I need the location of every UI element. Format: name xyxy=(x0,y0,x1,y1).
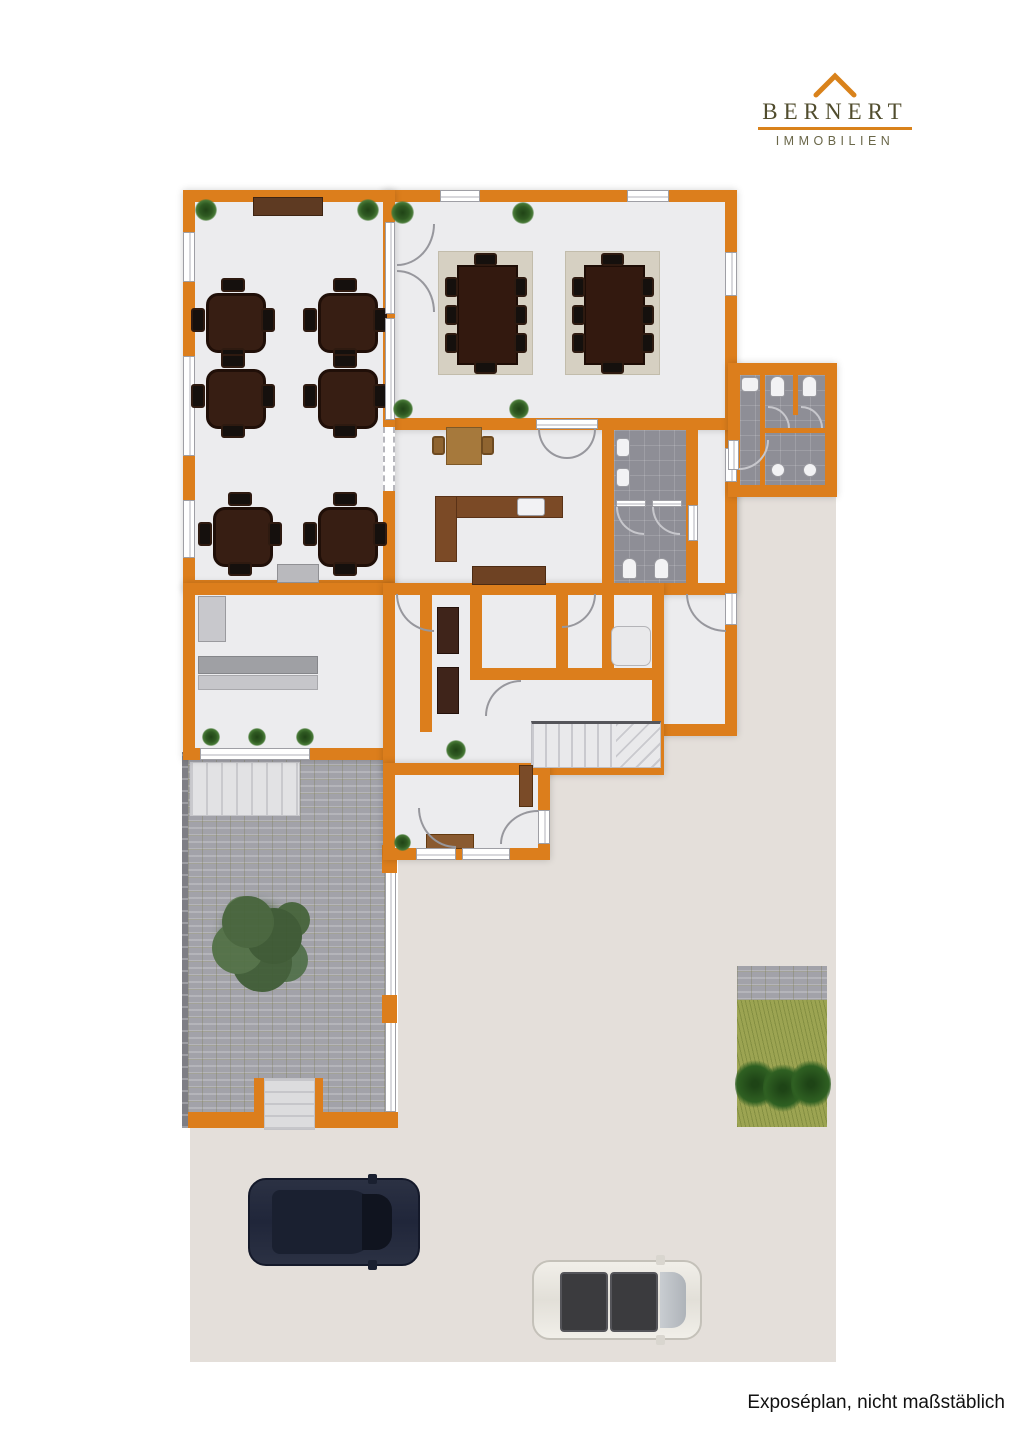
plan-caption: Exposéplan, nicht maßstäblich xyxy=(747,1392,1005,1414)
eight-seat-table-group xyxy=(438,251,533,375)
console-shelf xyxy=(519,765,533,807)
window xyxy=(440,190,480,202)
four-seat-table xyxy=(189,352,277,440)
logo-rule xyxy=(758,127,912,130)
table-top xyxy=(457,265,518,365)
courtyard-south-wall xyxy=(320,1112,398,1128)
door-gap xyxy=(416,848,456,860)
toilet xyxy=(654,558,669,579)
stall-door xyxy=(652,500,682,507)
table-top xyxy=(318,293,378,353)
car-sunroof xyxy=(610,1272,658,1332)
chair xyxy=(333,424,357,438)
table-top xyxy=(318,507,378,567)
stall-door xyxy=(616,500,646,507)
chair xyxy=(221,278,245,292)
plant xyxy=(512,202,534,224)
plant xyxy=(391,201,414,224)
car-windshield xyxy=(660,1272,686,1328)
stair-treads xyxy=(532,724,617,767)
wc-wall xyxy=(602,425,614,583)
logo-subtitle: IMMOBILIEN xyxy=(752,134,918,148)
dark-car xyxy=(248,1178,420,1266)
kitchen-sink xyxy=(517,498,545,516)
service-counter xyxy=(198,656,318,674)
bush xyxy=(791,1058,831,1110)
window xyxy=(183,500,195,558)
plant xyxy=(195,199,217,221)
appliance xyxy=(611,626,651,666)
logo: BERNERT IMMOBILIEN xyxy=(752,70,918,148)
chair xyxy=(221,354,245,368)
table-top xyxy=(206,369,266,429)
kitchen-sideboard xyxy=(472,566,546,585)
chair xyxy=(445,277,458,297)
garden-paving xyxy=(737,966,827,1000)
toilet xyxy=(770,376,785,397)
plant xyxy=(357,199,379,221)
door-gap xyxy=(536,419,598,429)
chair xyxy=(333,354,357,368)
window xyxy=(200,748,310,760)
chair xyxy=(572,305,585,325)
pantry-wall xyxy=(470,592,482,678)
vanity-basin xyxy=(741,377,759,392)
wash-basin xyxy=(616,438,630,457)
chair xyxy=(303,384,317,408)
tree xyxy=(222,896,274,948)
chair xyxy=(601,361,624,374)
door-gap xyxy=(688,505,698,541)
table-top xyxy=(206,293,266,353)
four-seat-table xyxy=(301,490,389,578)
chair xyxy=(303,522,317,546)
chair xyxy=(641,277,654,297)
wash-basin xyxy=(803,463,817,477)
table-top xyxy=(584,265,645,365)
four-seat-table xyxy=(301,352,389,440)
car-mirror xyxy=(656,1335,665,1345)
plant xyxy=(202,728,220,746)
logo-brand: BERNERT xyxy=(752,99,918,125)
chair xyxy=(641,333,654,353)
roof-outline-icon xyxy=(809,70,861,98)
wall-segment xyxy=(382,995,397,1023)
chair xyxy=(261,384,275,408)
car-mirror xyxy=(656,1255,665,1265)
table-top xyxy=(213,507,273,567)
chair xyxy=(261,308,275,332)
chair xyxy=(514,305,527,325)
window xyxy=(462,848,510,860)
exposeplan-canvas: BERNERT IMMOBILIEN Exposéplan, nicht maß… xyxy=(0,0,1018,1440)
staircase xyxy=(531,721,661,768)
door-gap xyxy=(385,222,395,314)
plant xyxy=(296,728,314,746)
door-gap xyxy=(725,593,737,625)
chair xyxy=(191,308,205,332)
toilet xyxy=(802,376,817,397)
chair xyxy=(601,253,624,266)
four-seat-table xyxy=(301,276,389,364)
wc-wall xyxy=(765,428,825,433)
refrigerator xyxy=(198,596,226,642)
chair xyxy=(514,333,527,353)
chair xyxy=(228,492,252,506)
kitchen-table xyxy=(446,427,482,465)
plant xyxy=(509,399,529,419)
door-gap xyxy=(728,440,739,470)
chair xyxy=(481,436,494,455)
wc-wall xyxy=(793,375,798,415)
chair xyxy=(191,384,205,408)
eight-seat-table-group xyxy=(565,251,660,375)
function-room xyxy=(383,190,737,430)
car-mirror xyxy=(368,1260,377,1270)
chair xyxy=(198,522,212,546)
four-seat-table xyxy=(189,276,277,364)
sideboard xyxy=(253,197,323,216)
toilet xyxy=(622,558,637,579)
chair xyxy=(373,522,387,546)
chair xyxy=(268,522,282,546)
kitchen-counter xyxy=(435,496,457,562)
door-gap xyxy=(538,810,550,844)
wash-basin xyxy=(616,468,630,487)
plant xyxy=(394,834,411,851)
chair xyxy=(228,562,252,576)
chair xyxy=(432,436,445,455)
chair xyxy=(221,424,245,438)
shelf xyxy=(437,607,459,654)
service-counter-shelf xyxy=(198,675,318,690)
chair xyxy=(445,333,458,353)
chair xyxy=(303,308,317,332)
wall-opening xyxy=(383,427,395,491)
plant xyxy=(248,728,266,746)
chair xyxy=(474,361,497,374)
chair xyxy=(572,333,585,353)
garden-steps xyxy=(264,1078,315,1130)
chair xyxy=(641,305,654,325)
wc-wall xyxy=(686,425,698,583)
stair-winders xyxy=(616,724,660,767)
chair xyxy=(572,277,585,297)
courtyard-south-wall xyxy=(254,1078,264,1128)
courtyard-south-wall xyxy=(188,1112,258,1128)
chair xyxy=(445,305,458,325)
window xyxy=(627,190,669,202)
four-seat-table xyxy=(196,490,284,578)
shelf xyxy=(437,667,459,714)
plant xyxy=(446,740,466,760)
car-mirror xyxy=(368,1174,377,1184)
chair xyxy=(514,277,527,297)
window xyxy=(725,252,737,296)
car-windshield xyxy=(362,1194,392,1250)
chair xyxy=(474,253,497,266)
window xyxy=(183,232,195,282)
table-top xyxy=(318,369,378,429)
courtyard-steps-top xyxy=(190,762,300,816)
plant xyxy=(393,399,413,419)
car-sunroof xyxy=(560,1272,608,1332)
chair xyxy=(333,562,357,576)
chair xyxy=(333,278,357,292)
chair xyxy=(333,492,357,506)
wash-basin xyxy=(771,463,785,477)
white-car xyxy=(532,1260,702,1340)
car-roof xyxy=(272,1190,376,1254)
